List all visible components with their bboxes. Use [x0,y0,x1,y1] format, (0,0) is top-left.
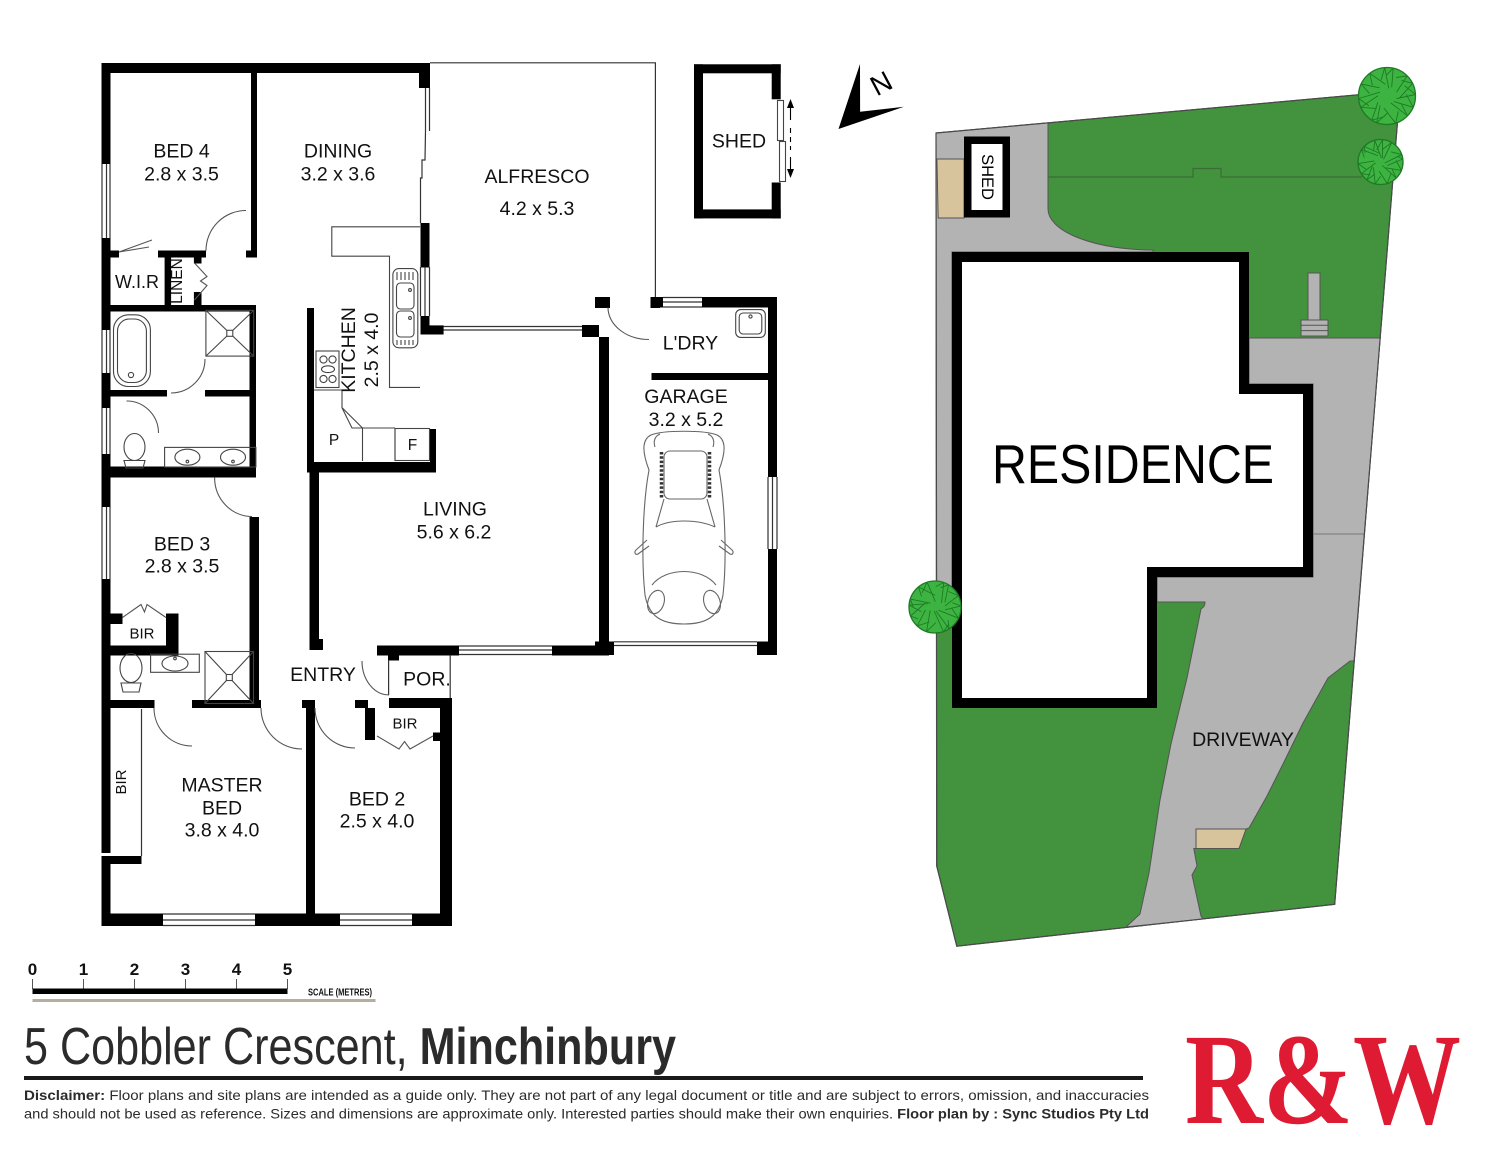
svg-text:3.2 x 3.6: 3.2 x 3.6 [301,164,376,186]
svg-text:L'DRY: L'DRY [663,333,718,355]
svg-text:5 Cobbler Crescent, Minchinbur: 5 Cobbler Crescent, Minchinbury [24,1018,676,1076]
svg-text:ENTRY: ENTRY [290,664,356,686]
svg-text:4.2 x 5.3: 4.2 x 5.3 [500,198,575,220]
svg-text:Disclaimer: Floor plans and si: Disclaimer: Floor plans and site plans a… [24,1087,1149,1103]
svg-text:F: F [408,437,417,454]
svg-text:SHED: SHED [712,131,766,153]
svg-text:SCALE (METRES): SCALE (METRES) [308,988,372,999]
svg-text:BIR: BIR [392,716,417,733]
svg-text:DINING: DINING [304,141,372,163]
svg-text:GARAGE: GARAGE [644,386,727,408]
svg-text:2.8 x 3.5: 2.8 x 3.5 [145,556,220,578]
svg-text:R&W: R&W [1185,1008,1461,1150]
svg-text:P: P [329,432,339,449]
svg-text:RESIDENCE: RESIDENCE [992,433,1274,495]
svg-text:0: 0 [28,960,37,979]
svg-text:BED: BED [202,798,242,820]
svg-text:2: 2 [130,960,139,979]
svg-text:2.8 x 3.5: 2.8 x 3.5 [144,164,219,186]
svg-text:3: 3 [181,960,190,979]
svg-text:LIVING: LIVING [423,499,487,521]
svg-text:2.5 x 4.0: 2.5 x 4.0 [340,811,415,833]
svg-text:DRIVEWAY: DRIVEWAY [1192,729,1294,751]
svg-text:and should not be used as refe: and should not be used as reference. Siz… [24,1106,1149,1122]
svg-text:MASTER: MASTER [181,775,262,797]
svg-text:BED 2: BED 2 [349,789,405,811]
svg-text:3.8 x 4.0: 3.8 x 4.0 [185,820,260,842]
svg-text:BIR: BIR [129,626,154,643]
svg-text:5: 5 [283,960,292,979]
svg-text:BIR: BIR [113,769,130,794]
svg-text:2.5 x 4.0: 2.5 x 4.0 [361,312,383,387]
svg-text:POR.: POR. [403,669,451,691]
svg-text:BED 4: BED 4 [153,141,210,163]
svg-text:3.2 x 5.2: 3.2 x 5.2 [649,409,724,431]
svg-text:KITCHEN: KITCHEN [338,307,360,393]
svg-text:SHED: SHED [978,154,996,200]
svg-text:W.I.R: W.I.R [115,272,159,292]
svg-text:4: 4 [232,960,242,979]
svg-text:BED 3: BED 3 [154,534,210,556]
svg-text:ALFRESCO: ALFRESCO [484,166,589,188]
svg-text:1: 1 [79,960,88,979]
svg-text:5.6 x 6.2: 5.6 x 6.2 [417,522,492,544]
svg-text:LINEN: LINEN [169,258,186,304]
